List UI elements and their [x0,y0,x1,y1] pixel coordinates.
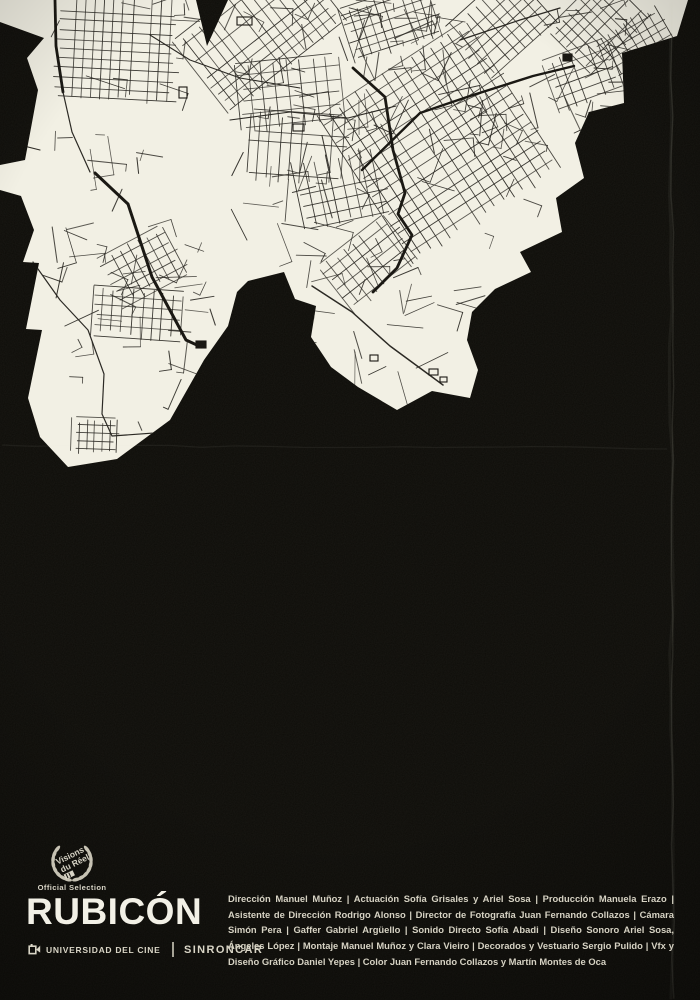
separator-divider [172,942,174,957]
film-flag-icon [28,943,41,956]
university-name: UNIVERSIDAD DEL CINE [46,945,160,955]
credits-block: Dirección Manuel Muñoz | Actuación Sofía… [228,891,674,970]
film-title: RUBICÓN [26,893,202,930]
festival-badge: Visions du Réel Official Selection [26,840,118,894]
laurel-wreath-icon: Visions du Réel Official Selection [26,840,118,894]
poster-root: { "poster": { "title": "RUBICÓN", "badge… [0,0,700,1000]
